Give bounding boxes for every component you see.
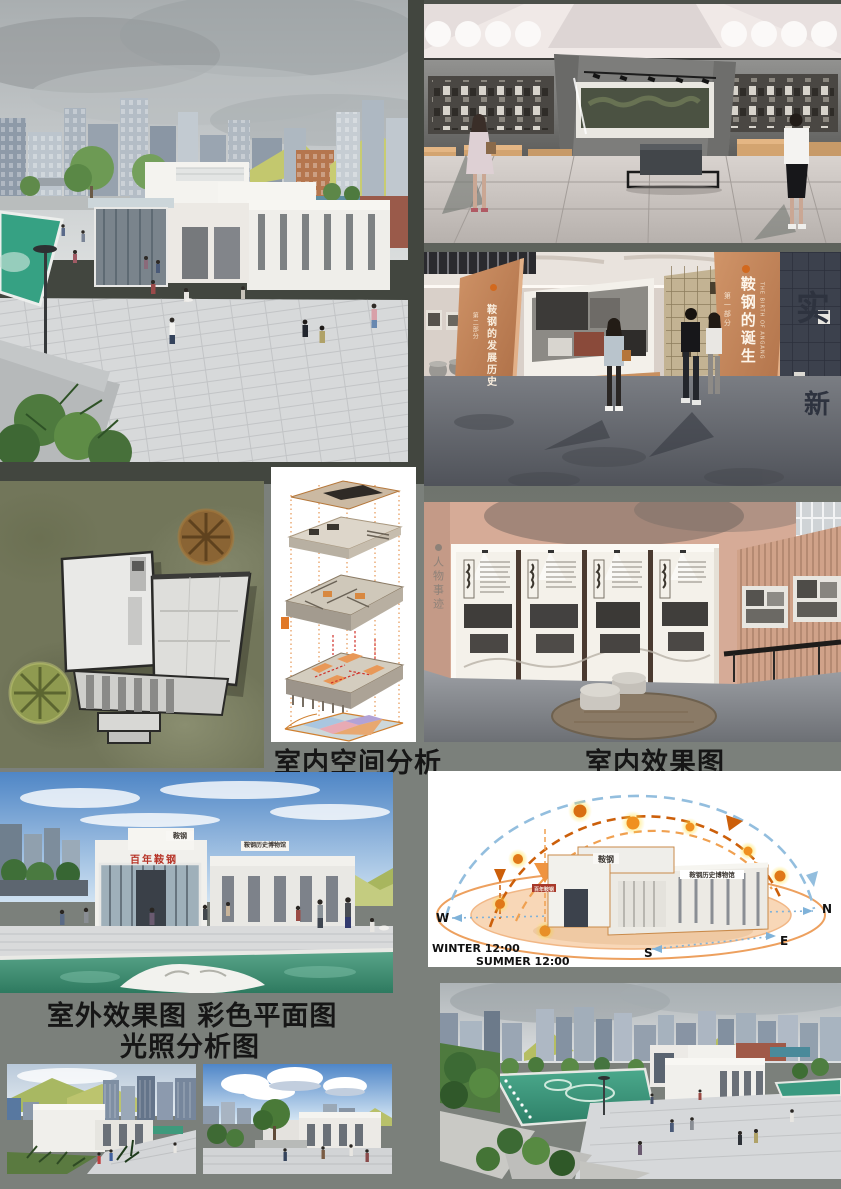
a-right-pool <box>776 1079 841 1097</box>
presentation-board: 鞍钢的诞生 第一部分 THE BIRTH OF ANGANG 鞍钢的发展历史 第… <box>0 0 841 1189</box>
diagram-roof-sign: 鞍钢历史博物馆 <box>689 870 735 879</box>
slat-wall <box>724 526 841 688</box>
section-dot-left <box>490 284 497 291</box>
sun-diagram-scene: 鞍钢 鞍钢历史博物馆 百年鞍钢 W N S E WINTER 12:00 SUM… <box>428 771 841 967</box>
entrance-roof-sign: 鞍钢历史博物馆 <box>241 841 289 851</box>
copper-right-subtitle-en: THE BIRTH OF ANGANG <box>758 282 763 359</box>
axon-scene <box>271 467 416 742</box>
photo-exhibit-right <box>724 78 834 128</box>
render-interior-hall <box>424 4 841 243</box>
thumb1-scene <box>7 1064 196 1174</box>
relief-character-2: 新 <box>804 392 830 419</box>
axon-color-plan <box>285 713 403 741</box>
tree-autumn <box>179 510 233 564</box>
relief-character-1: 实 <box>796 292 830 328</box>
interior-hall-scene <box>424 4 841 243</box>
entrance-red-sign: 百年鞍钢 <box>130 856 178 867</box>
site-plan-scene <box>0 481 264 768</box>
label-north: N <box>822 902 832 916</box>
render-aerial-plaza <box>440 983 841 1179</box>
label-dot <box>435 544 442 551</box>
copper-right-title: 鞍钢的诞生 <box>739 276 755 366</box>
render-interior-copper: 鞍钢的诞生 第一部分 THE BIRTH OF ANGANG 鞍钢的发展历史 第… <box>424 252 841 486</box>
axon-upper-floor <box>289 517 401 559</box>
aerial-plaza-scene <box>440 983 841 1179</box>
render-thumb-right <box>203 1064 392 1174</box>
render-exterior-main <box>0 0 408 462</box>
photo-exhibit-left <box>432 80 550 130</box>
axon-first-floor <box>286 631 403 715</box>
pool-with-rock <box>0 950 393 993</box>
section-dot-right <box>742 265 750 273</box>
render-interior-photo-wall: 人物事迹 <box>424 502 841 742</box>
copper-left-section: 第二部分 <box>471 312 477 340</box>
label-summer-noon: SUMMER 12:00 <box>476 955 570 967</box>
entrance-scene <box>0 772 393 993</box>
diagram-front-sign: 百年鞍钢 <box>534 886 554 893</box>
entrance-parapet-sign: 鞍钢 <box>166 831 194 841</box>
copper-left-title: 鞍钢的发展历史 <box>484 304 495 388</box>
carpet-floor <box>424 376 841 486</box>
caption-light-analysis: 光照分析图 <box>120 1025 260 1064</box>
photo-wall-scene <box>424 502 841 742</box>
render-exterior-entrance: 鞍钢 百年鞍钢 鞍钢历史博物馆 <box>0 772 393 993</box>
label-east: E <box>780 934 788 948</box>
site-plan-aerial <box>0 481 264 768</box>
copper-right-section: 第一部分 <box>723 292 730 328</box>
building-roof <box>62 552 250 743</box>
tree-green <box>10 663 70 723</box>
axon-roof <box>291 481 399 509</box>
label-winter-noon: WINTER 12:00 <box>432 942 520 955</box>
label-south: S <box>644 946 653 960</box>
label-west: W <box>436 911 449 925</box>
render-thumb-left <box>7 1064 196 1174</box>
thumb2-scene <box>203 1064 392 1174</box>
diagram-parapet-sign: 鞍钢 <box>598 854 614 864</box>
plaza-pool <box>0 212 62 305</box>
sunpath-diagram: 鞍钢 鞍钢历史博物馆 百年鞍钢 W N S E WINTER 12:00 SUM… <box>428 771 841 967</box>
axon-second-floor <box>281 575 403 631</box>
hero-exterior-scene <box>0 0 408 462</box>
photo-wall-side-label: 人物事迹 <box>432 556 444 612</box>
exploded-axon-diagram <box>271 467 416 742</box>
